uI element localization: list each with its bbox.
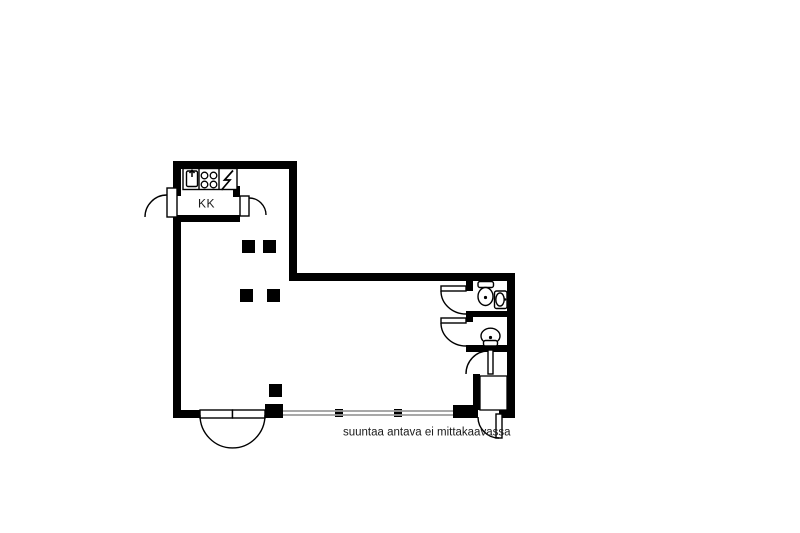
wall-bottom-stub [265, 404, 283, 418]
pillar-3 [240, 289, 253, 302]
kitchen-fixtures [183, 169, 237, 191]
pillar-1 [242, 240, 255, 253]
floorplan-canvas: KK suuntaa antava ei mittakaavassa [0, 0, 800, 533]
window-band [283, 411, 453, 415]
kitchen-label: KK [198, 197, 215, 211]
door-leaf-double-right [233, 410, 266, 418]
wall-right [507, 273, 515, 418]
wall-mid-vertical [289, 161, 297, 281]
floorplan-drawing: KK suuntaa antava ei mittakaavassa [0, 0, 800, 533]
wall-kitchen-bottom [175, 215, 240, 222]
wall-wc-divider [466, 311, 507, 317]
washbasin-tap [504, 298, 506, 300]
pillar-5 [269, 384, 282, 397]
door-arc-kitchen-inner [249, 198, 266, 215]
door-arc-double [200, 415, 265, 448]
wall-wc-left-a [466, 281, 473, 291]
pillar-4 [267, 289, 280, 302]
door-arc-wc-top [441, 291, 466, 314]
toilet-drain-bottom-wc [489, 336, 492, 339]
toilet-tank-top-wc [478, 282, 494, 288]
toilet-tank-bottom-wc [484, 341, 498, 347]
wall-left-lower [173, 216, 181, 418]
wall-vestibule-left [473, 374, 480, 410]
door-arc-wc-bottom [441, 323, 466, 346]
door-leaf-kitchen-exterior [167, 188, 177, 217]
door-leaf-wc-bottom [441, 318, 466, 323]
door-leaf-double-left [200, 410, 233, 418]
vestibule-box [480, 376, 507, 410]
door-leaf-kitchen-inner [240, 196, 249, 216]
caption-text: suuntaa antava ei mittakaavassa [343, 427, 511, 439]
door-arc-kitchen-exterior [145, 195, 167, 217]
doors [145, 188, 502, 448]
wall-bottom-left [173, 410, 200, 418]
pillar-2 [263, 240, 276, 253]
door-leaf-wc-top [441, 286, 466, 291]
wall-wing-top [289, 273, 515, 281]
toilet-drain-top-wc [484, 296, 487, 299]
door-arc-vestibule-inner [466, 351, 488, 374]
door-leaf-vestibule-inner [488, 350, 493, 374]
